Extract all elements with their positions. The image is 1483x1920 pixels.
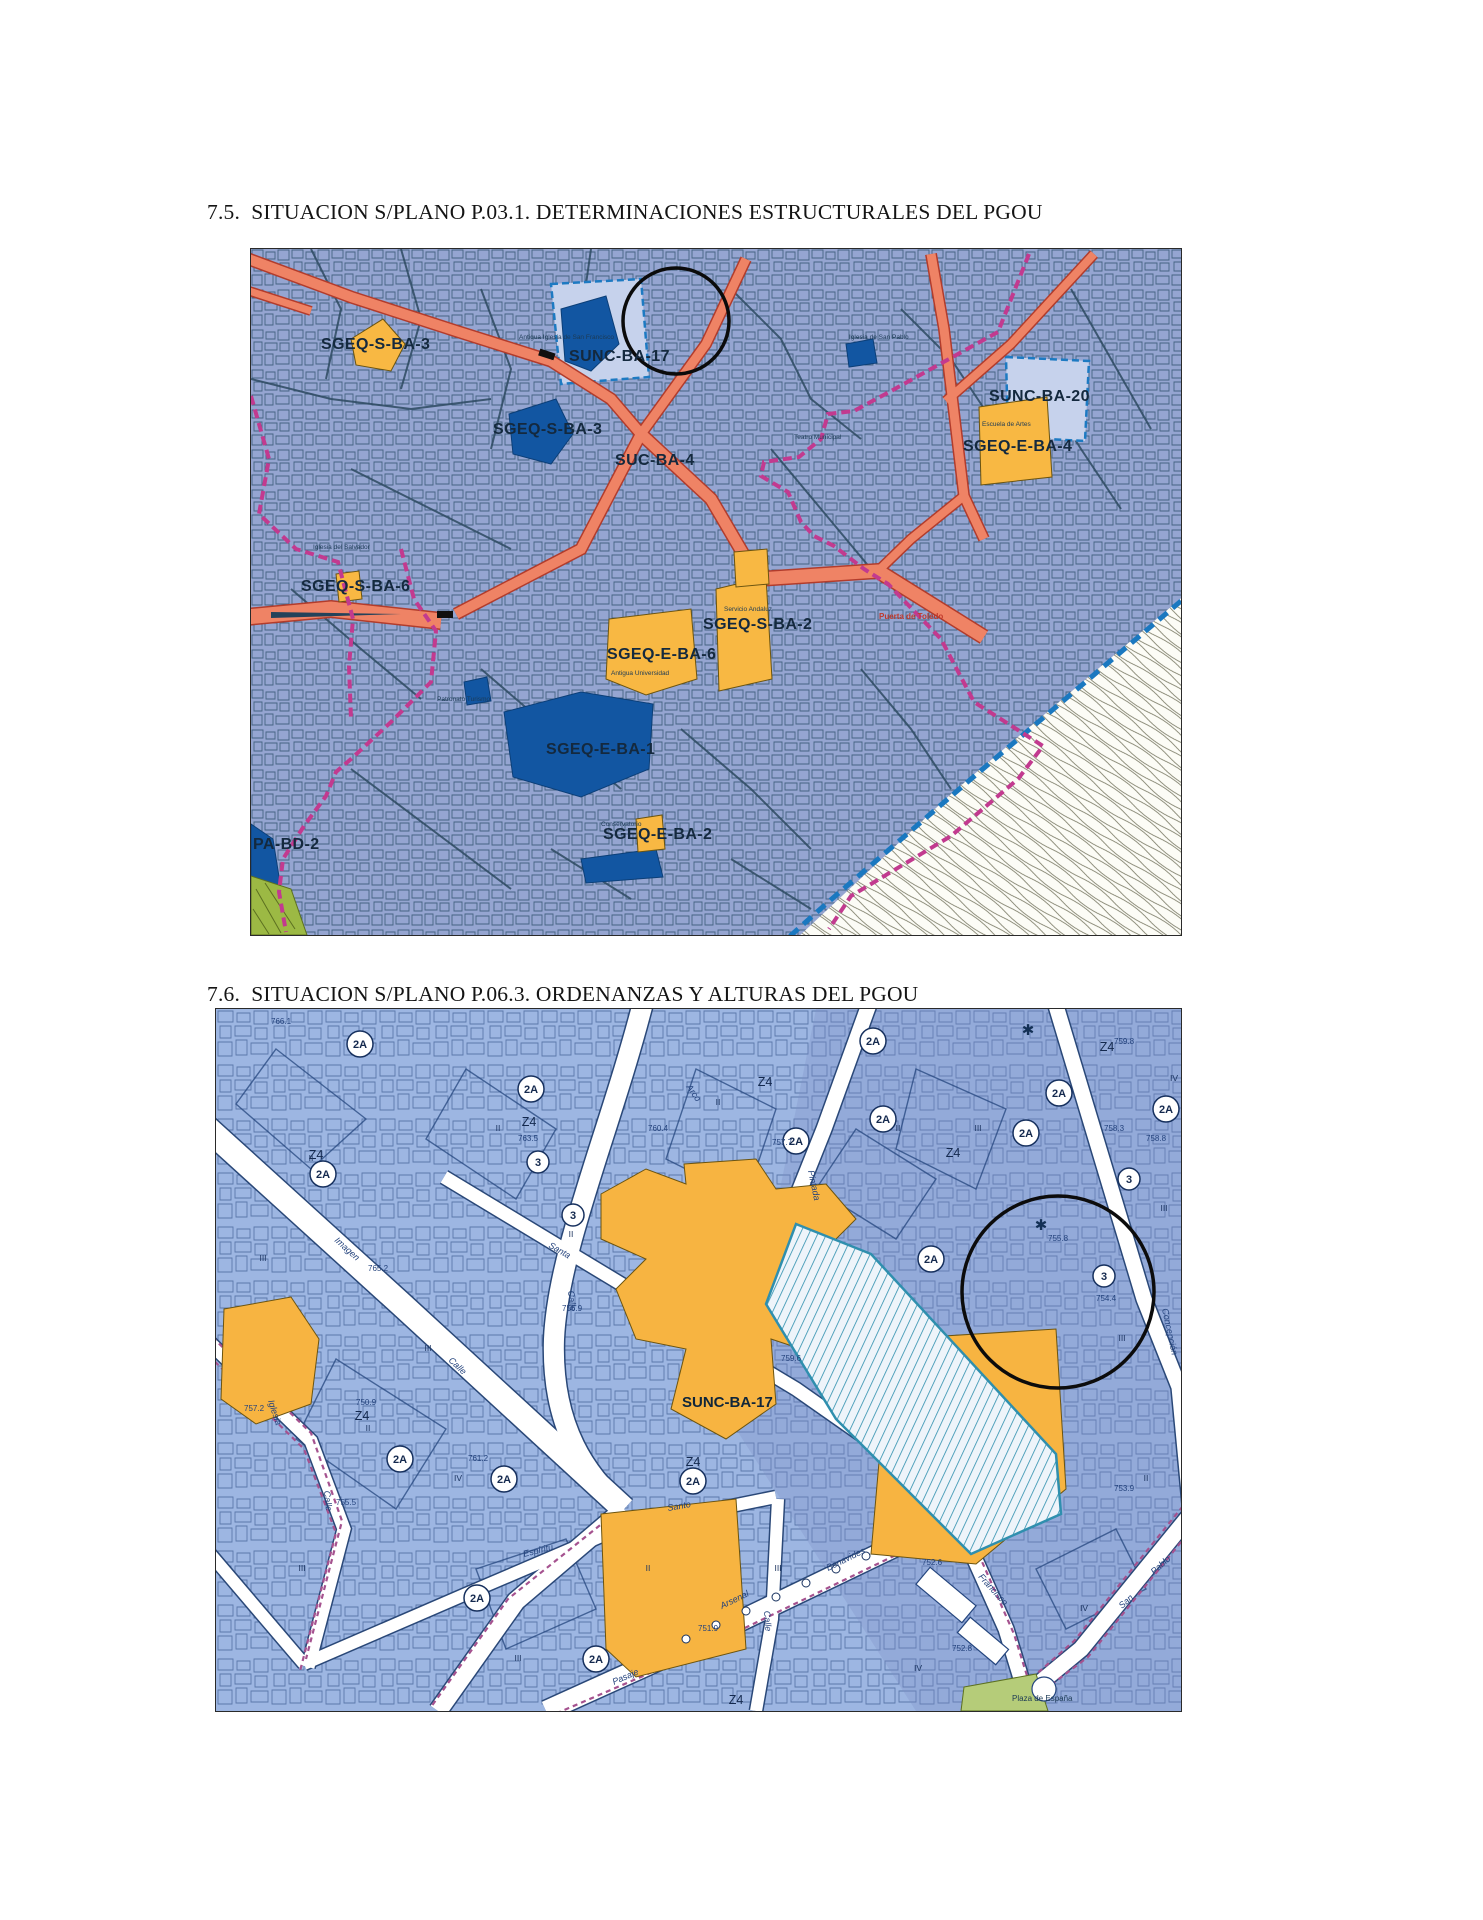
ordinance-marker-3: 3 — [1126, 1174, 1132, 1186]
elevation-label: 753.9 — [1114, 1484, 1135, 1493]
elevation-label: 750.9 — [356, 1398, 377, 1407]
ordinance-marker-2a: 2A — [876, 1114, 890, 1126]
ordinance-marker-2a: 2A — [589, 1654, 603, 1666]
elevation-label: 763.5 — [518, 1134, 539, 1143]
zone-label-sunc-ba-20: SUNC-BA-20 — [989, 388, 1090, 405]
street-name-label: Calle — [762, 1610, 773, 1631]
height-roman-numeral: III — [259, 1253, 266, 1263]
height-roman-numeral: IV — [1170, 1073, 1178, 1083]
ordinance-marker-2a: 2A — [316, 1169, 330, 1181]
zone-label-z4: Z4 — [355, 1409, 370, 1423]
ordinance-marker-2a: 2A — [686, 1476, 700, 1488]
zone-label-z4: Z4 — [1100, 1040, 1115, 1054]
poi-label-patronato: Patronato Turismo — [437, 696, 490, 703]
poi-label-iglesia-san-pablo: Iglesia de San Pablo — [849, 334, 909, 341]
poi-label-servicio-andaluz: Servicio Andaluz — [724, 606, 772, 613]
height-roman-numeral: III — [514, 1653, 521, 1663]
height-roman-numeral: III — [298, 1563, 305, 1573]
zone-label-sgeq-s-ba-6: SGEQ-S-BA-6 — [301, 578, 410, 595]
zone-label-sunc-ba-17: SUNC-BA-17 — [569, 348, 670, 365]
ordinance-marker-2a: 2A — [1019, 1128, 1033, 1140]
poi-label-escuela-artes: Escuela de Artes — [982, 421, 1032, 428]
ordinance-marker-2a: 2A — [393, 1454, 407, 1466]
height-roman-numeral: III — [974, 1123, 981, 1133]
elevation-label: 758.8 — [1146, 1134, 1167, 1143]
zone-label-pa-bd-2: PA-BD-2 — [253, 836, 320, 853]
height-roman-numeral: II — [496, 1123, 501, 1133]
zone-label-suc-ba-4: SUC-BA-4 — [615, 452, 695, 469]
zone-label-z4: Z4 — [758, 1075, 773, 1089]
zone-label-z4: Z4 — [522, 1115, 537, 1129]
elevation-label: 754.4 — [1096, 1294, 1117, 1303]
height-roman-numeral: IV — [914, 1663, 922, 1673]
poi-label-teatro-municipal: Teatro Municipal — [794, 434, 842, 441]
height-roman-numeral: II — [569, 1229, 574, 1239]
zone-label-sgeq-e-ba-4: SGEQ-E-BA-4 — [963, 438, 1072, 455]
height-roman-numeral: II — [309, 1153, 314, 1163]
elevation-label: 755.5 — [336, 1498, 357, 1507]
height-roman-numeral: III — [424, 1343, 431, 1353]
height-roman-numeral: III — [1118, 1333, 1125, 1343]
ordinance-marker-2a: 2A — [353, 1039, 367, 1051]
ordinance-marker-3: 3 — [1101, 1271, 1107, 1283]
section-heading-7-6: 7.6. SITUACION S/PLANO P.06.3. ORDENANZA… — [207, 982, 918, 1007]
zone-label-sgeq-s-ba-3-top: SGEQ-S-BA-3 — [321, 336, 430, 353]
poi-label-iglesia-salvador: Iglesia del Salvador — [313, 544, 371, 551]
elevation-label: 766.1 — [271, 1017, 292, 1026]
ordinance-marker-3: 3 — [535, 1157, 541, 1169]
height-roman-numeral: II — [1144, 1473, 1149, 1483]
height-roman-numeral: II — [646, 1563, 651, 1573]
height-roman-numeral: IV — [1080, 1603, 1088, 1613]
height-roman-numeral: III — [774, 1563, 781, 1573]
elevation-label: 759.6 — [781, 1354, 802, 1363]
zone-label-sgeq-e-ba-2: SGEQ-E-BA-2 — [603, 826, 712, 843]
elevation-label: 759.8 — [1114, 1037, 1135, 1046]
elevation-label: 751.9 — [698, 1624, 719, 1633]
palm-tree-icon: ✱ — [1035, 1217, 1048, 1234]
elevation-label: 758.3 — [1104, 1124, 1125, 1133]
zone-label-sgeq-e-ba-1: SGEQ-E-BA-1 — [546, 741, 655, 758]
zone-label-sgeq-e-ba-6: SGEQ-E-BA-6 — [607, 646, 716, 663]
height-roman-numeral: II — [716, 1097, 721, 1107]
elevation-label: 765.2 — [368, 1264, 389, 1273]
poi-label-antigua-universidad: Antigua Universidad — [611, 670, 670, 677]
elevation-label: 755.8 — [1048, 1234, 1069, 1243]
poi-label-antigua-iglesia: Antigua Iglesia de San Francisco — [519, 334, 614, 341]
street-name-label: Calle — [322, 1490, 334, 1511]
ordinance-marker-3: 3 — [570, 1210, 576, 1222]
zone-label-z4: Z4 — [729, 1693, 744, 1707]
palm-tree-icon: ✱ — [1022, 1022, 1035, 1039]
elevation-label: 760.4 — [648, 1124, 669, 1133]
zone-label-sgeq-s-ba-2: SGEQ-S-BA-2 — [703, 616, 812, 633]
elevation-label: 757.7 — [772, 1138, 793, 1147]
elevation-label: 761.2 — [468, 1454, 489, 1463]
ordinance-marker-2a: 2A — [1052, 1088, 1066, 1100]
map1-canvas: Iglesia del Salvador Antigua Iglesia de … — [251, 249, 1181, 935]
map-figure-determinaciones-pgou: Iglesia del Salvador Antigua Iglesia de … — [250, 248, 1182, 936]
height-roman-numeral: II — [366, 1423, 371, 1433]
plaza-espana-label: Plaza de España — [1012, 1694, 1073, 1703]
ordinance-marker-2a: 2A — [1159, 1104, 1173, 1116]
height-roman-numeral: II — [896, 1123, 901, 1133]
elevation-label: 752.8 — [952, 1644, 973, 1653]
ordinance-marker-2a: 2A — [866, 1036, 880, 1048]
zone-label-sgeq-s-ba-3-mid: SGEQ-S-BA-3 — [493, 421, 602, 438]
ordinance-marker-2a: 2A — [497, 1474, 511, 1486]
zone-label-z4: Z4 — [686, 1455, 701, 1469]
ordinance-marker-2a: 2A — [470, 1593, 484, 1605]
section-heading-7-5: 7.5. SITUACION S/PLANO P.03.1. DETERMINA… — [207, 200, 1043, 225]
poi-label-puerta-toledo: Puerta de Toledo — [879, 612, 943, 621]
map2-canvas: ✱ ✱ 2A 2A 2A 2A 2A 2A 2A 2A 2A 2A 2A 2A … — [216, 1009, 1181, 1711]
ordinance-marker-2a: 2A — [524, 1084, 538, 1096]
elevation-label: 752.6 — [922, 1558, 943, 1567]
zone-label-sunc-ba-17-map2: SUNC-BA-17 — [682, 1394, 773, 1411]
height-roman-numeral: IV — [454, 1473, 462, 1483]
elevation-label: 757.2 — [244, 1404, 265, 1413]
ordinance-marker-2a: 2A — [924, 1254, 938, 1266]
height-roman-numeral: III — [1160, 1203, 1167, 1213]
map-figure-ordenanzas-alturas: ✱ ✱ 2A 2A 2A 2A 2A 2A 2A 2A 2A 2A 2A 2A … — [215, 1008, 1182, 1712]
zone-label-z4: Z4 — [946, 1146, 961, 1160]
